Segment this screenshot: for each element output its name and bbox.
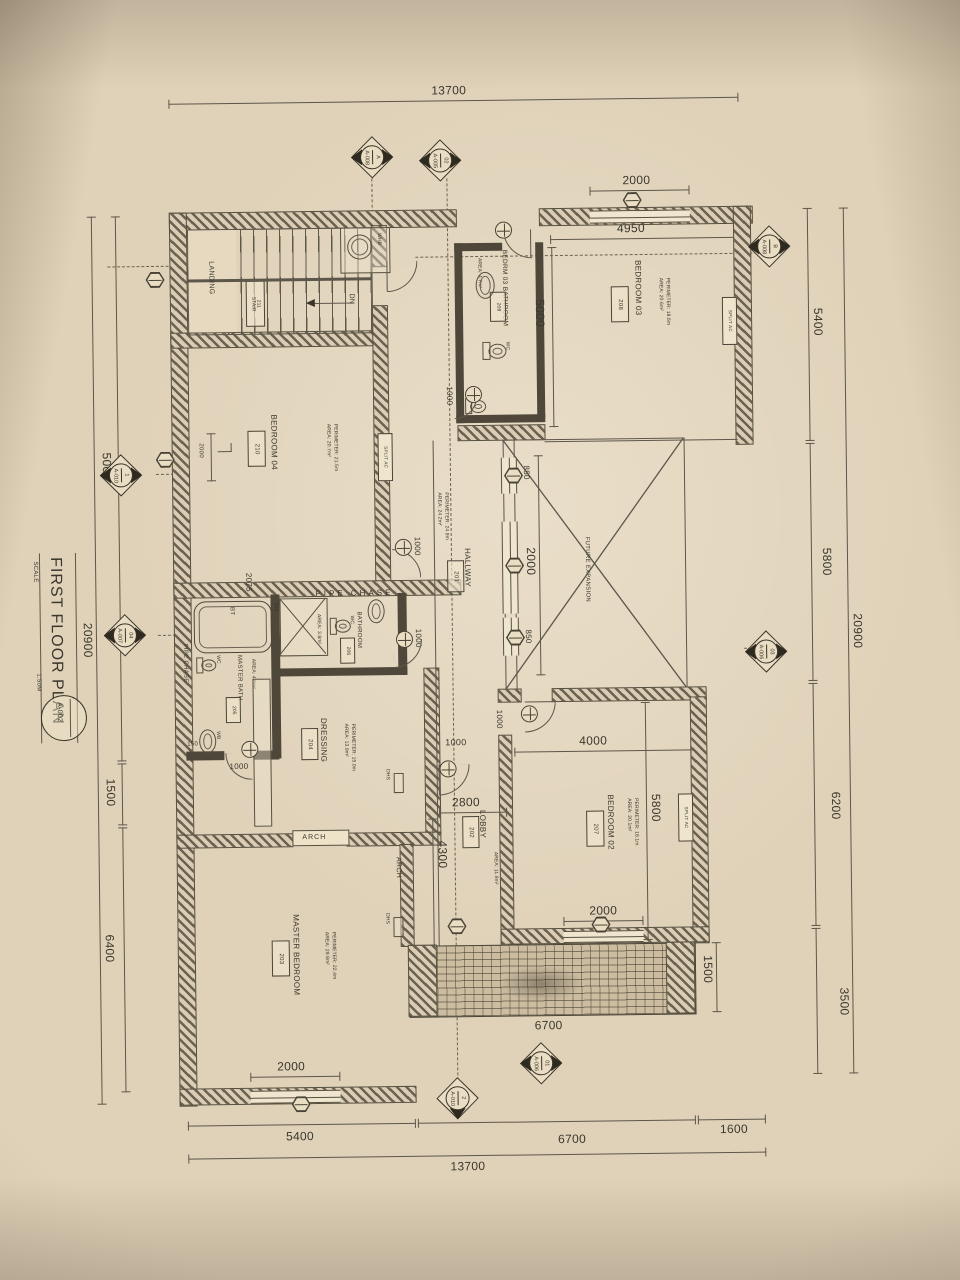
split-ac-bedroom03: SPLIT AC — [722, 297, 738, 345]
dim-wc-door: 1000 — [445, 386, 453, 405]
dim-line-lobby-width — [439, 812, 507, 814]
scale-value: 1:50M — [35, 673, 41, 691]
master-bedroom-label: MASTER BEDROOM — [291, 914, 300, 995]
bedroom03-label: BEDROOM 03 — [633, 260, 642, 316]
marker-number: 1 — [123, 474, 129, 477]
window-bedroom03-top — [590, 209, 690, 223]
bedroom02-perimeter: PERIMETER: 18.1m — [633, 798, 639, 846]
dim-line-bed02-width — [514, 749, 691, 752]
marker-number: 01 — [544, 1060, 550, 1066]
marker-sheet: A-005 — [432, 153, 438, 168]
dim-right-3: 6200 — [830, 792, 842, 820]
dim-line-bed03-width — [550, 237, 740, 240]
masterbath-basin-label: WB — [215, 731, 220, 739]
dim-bed04-2000: 2000 — [198, 443, 204, 458]
photo-of-floor-plan-sheet: SCALE FIRST FLOOR PLAN 1:50M A-002 13700… — [0, 0, 960, 1280]
dim-hall-door-1: 1000 — [413, 537, 421, 556]
floor-plan-drawing: SCALE FIRST FLOOR PLAN 1:50M A-002 13700… — [0, 0, 960, 1280]
bathroom206-area: AREA: 3.8m² — [316, 614, 321, 644]
marker-sheet: A-007 — [116, 628, 122, 643]
dim-lobby-height: 4300 — [436, 840, 448, 868]
dressing-area-text: AREA: 13.9m² PERIMETER: 15.0m — [343, 724, 356, 772]
marker-number: 02 — [443, 157, 449, 163]
bed04-furniture-mark-a — [218, 451, 232, 452]
dim-bottom-1: 5400 — [286, 1130, 314, 1142]
arch-label-v: ARCH — [395, 857, 402, 878]
hallway-perimeter: PERIMETER: 24.9m — [443, 492, 449, 540]
bedroom02-tag-number: 207 — [592, 823, 598, 834]
masterbath-basin — [199, 729, 216, 753]
marker-sheet: A-008 — [364, 150, 370, 165]
bed04-furniture-mark-b — [231, 443, 232, 452]
dim-lobby-width: 2800 — [452, 796, 480, 808]
scale-label: SCALE — [32, 561, 38, 582]
section-marker-02: A-00502 — [422, 142, 458, 178]
dim-bed02-door: 1000 — [495, 710, 503, 729]
marker-number: A — [375, 155, 381, 159]
wall-bath209-right — [535, 242, 545, 418]
wall-top-left — [170, 210, 456, 229]
dhs-label-master: DHS — [384, 913, 389, 924]
split-ac-bedroom03-label: SPLIT AC — [727, 310, 732, 332]
dim-line-left-2 — [121, 763, 123, 825]
dim-line-balcony-width — [716, 942, 718, 1012]
dim-left-total: 20900 — [82, 623, 94, 658]
marker-sheet: A-008 — [761, 239, 767, 254]
door-tag-lobby — [439, 760, 456, 777]
bath206-wc-label: WC — [349, 616, 354, 625]
bedroom04-label: BEDROOM 04 — [269, 414, 278, 470]
dhs-label-dressing: DHS — [385, 769, 390, 780]
dim-line-top-window — [590, 189, 690, 191]
pipe-chase-label-v: PIPE CHASE — [182, 644, 188, 683]
window-tag-left-wall-1 — [145, 272, 164, 288]
dim-left-2: 1500 — [105, 778, 117, 806]
pipe-chase-label-h: PIPE CHASE — [315, 589, 393, 598]
lobby-tag: 202 — [462, 816, 479, 848]
section-marker-01: A-00601 — [523, 1045, 559, 1081]
section-marker-1: A-0101 — [103, 457, 139, 493]
balcony-cap-right — [667, 942, 695, 1012]
dim-bed02-window: 2000 — [589, 904, 617, 916]
dim-bath209-height: 5000 — [534, 299, 546, 327]
dim-top-window: 2000 — [622, 174, 650, 186]
wall-dressing-bottom-right — [347, 832, 440, 845]
dressing-perimeter: PERIMETER: 15.0m — [350, 724, 356, 772]
stair-number: 211 — [255, 300, 260, 308]
dim-top-total: 13700 — [431, 84, 466, 96]
bathroom206-area-text: AREA: 3.8m² — [316, 614, 321, 644]
sheet-number-bubble: A-002 — [41, 695, 88, 742]
marker-sheet: A-010 — [449, 1091, 455, 1106]
marker-sheet: A-006 — [758, 644, 764, 659]
marker-sheet: A-010 — [112, 468, 118, 483]
dim-bottom-2: 6700 — [558, 1133, 586, 1145]
dim-line-right-1 — [807, 208, 811, 441]
wall-bed02-top-a — [499, 690, 521, 702]
masterbath-tag-number: 205 — [231, 706, 236, 715]
dhs-unit-dressing — [394, 773, 404, 793]
masterbath-wc-bowl — [201, 659, 216, 671]
door-tag-hall-2 — [396, 631, 413, 648]
dim-bottom-3: 1600 — [720, 1123, 748, 1135]
marker-number: B — [772, 244, 778, 248]
dim-bed02-height: 5800 — [650, 794, 662, 822]
stair-tag: STAIR 211 — [246, 281, 266, 327]
sheet-number: A-002 — [56, 702, 63, 722]
bedroom04-area: AREA: 20.7m² — [325, 424, 331, 472]
dim-line-bed02-height — [645, 702, 649, 940]
dim-line-left-3 — [122, 827, 126, 1092]
dim-150: 150 — [187, 741, 198, 747]
hallway-tag-number: 201 — [453, 571, 459, 582]
future-expansion-label: FUTURE EXPANSION — [584, 537, 591, 602]
dim-hall-win-3: 850 — [524, 629, 532, 643]
split-ac-bedroom02: SPLIT AC — [678, 793, 694, 841]
hallway-area: AREA: 24.2m² — [436, 492, 442, 540]
door-tag-bedroom02 — [521, 705, 538, 722]
wall-bed02-right — [691, 697, 709, 942]
door-arc-bedroom04 — [386, 261, 417, 292]
landing-label: LANDING — [207, 261, 214, 294]
bed03-bath-tag: 209 — [490, 292, 506, 322]
section-marker-a: A-008A — [354, 139, 390, 175]
bedroom02-label: BEDROOM 02 — [606, 794, 615, 850]
bedroom03-area-text: AREA: 20.6m² PERIMETER: 18.6m — [658, 278, 671, 326]
dressing-area: AREA: 13.9m² — [343, 724, 349, 772]
bedroom03-area: AREA: 20.6m² — [658, 278, 664, 326]
sheet-number-divider — [70, 699, 71, 737]
dim-line-bottom-1 — [188, 1123, 416, 1127]
dim-line-bed04-2000 — [210, 433, 212, 481]
bathroom206-tag-number: 206 — [345, 646, 350, 655]
dim-hall-win-1: 850 — [522, 465, 530, 479]
arch-label-h: ARCH — [302, 834, 326, 841]
dash-line-top-left — [107, 266, 173, 268]
dim-balcony-length: 6700 — [535, 1019, 563, 1031]
dim-line-top-total — [168, 97, 738, 105]
dim-left-3: 6400 — [104, 934, 116, 962]
bedroom03-perimeter: PERIMETER: 18.6m — [665, 278, 671, 326]
dressing-tag-number: 204 — [307, 739, 313, 750]
hallway-area-text: AREA: 24.2m² PERIMETER: 24.9m — [436, 492, 449, 540]
dn-label: DN — [348, 294, 355, 305]
section-marker-2: A-0102 — [439, 1080, 475, 1116]
bedroom04-tag-number: 210 — [254, 443, 260, 454]
dressing-label: DRESSING — [319, 718, 328, 762]
dim-line-bottom-3 — [698, 1119, 766, 1121]
dim-line-right-2 — [810, 443, 814, 681]
wall-bath209-bottom — [458, 425, 544, 440]
master-bedroom-area-text: AREA: 29.8m² PERIMETER: 22.4m — [324, 932, 337, 980]
section-marker-03: A-00603 — [748, 633, 784, 669]
section-marker-04: A-00704 — [107, 617, 143, 653]
dash-line-marker-1 — [156, 474, 174, 475]
wall-bath209-bottom-solid — [456, 414, 545, 423]
balcony-cap-left — [409, 946, 437, 1016]
bed03-bath-wc-label: WC — [504, 342, 509, 351]
dn-arrow-head — [306, 299, 315, 307]
hallway-tag: 201 — [447, 560, 464, 592]
lobby-area-text: AREA: 11.9m² — [493, 852, 498, 885]
bathroom206-label: BATHROOM — [356, 611, 362, 648]
balcony — [409, 942, 697, 1018]
bedroom03-tag: 208 — [611, 286, 629, 322]
bedroom03-tag-number: 208 — [617, 299, 623, 310]
bedroom04-area-text: AREA: 20.7m² PERIMETER: 21.5m — [325, 424, 338, 472]
bed03-bath-basin — [476, 272, 495, 299]
bathtub-label: BT — [229, 607, 235, 615]
dim-line-right-4 — [816, 928, 819, 1074]
marker-sheet: A-006 — [533, 1056, 539, 1071]
wall-dressing-bottom-left — [177, 834, 292, 847]
masterbath-wc-label: WC — [215, 655, 220, 664]
wall-bed02-top-b — [553, 687, 706, 701]
split-ac-bedroom02-label: SPLIT AC — [683, 806, 688, 828]
dim-line-left-total — [91, 217, 103, 1105]
dim-pipe-chase: 2075 — [244, 573, 252, 592]
shower-label: SH — [273, 602, 279, 611]
window-tag-bed03-top — [623, 192, 642, 208]
dim-line-bottom-2 — [418, 1119, 696, 1123]
wall-lobby-bed02 — [499, 736, 514, 945]
door-tag-small-wc — [465, 386, 482, 403]
wall-bath206-bottom — [278, 667, 407, 677]
master-bedroom-tag-number: 203 — [278, 953, 284, 964]
bath206-basin — [367, 599, 384, 623]
dim-right-4: 3500 — [838, 988, 850, 1016]
section-line-horizontal — [415, 253, 757, 258]
door-tag-masterbath — [241, 741, 258, 758]
dim-line-right-3 — [813, 683, 817, 926]
dressing-tag: 204 — [301, 728, 318, 760]
masterbath-label: MASTER BATH — [236, 655, 243, 701]
lobby-area: AREA: 11.9m² — [493, 852, 498, 885]
dim-bed02-width: 4000 — [579, 734, 607, 746]
bathroom206-tag: 206 — [340, 638, 355, 664]
dim-line-master-window — [250, 1076, 340, 1078]
section-marker-b: A-008B — [751, 228, 787, 264]
marker-number: 03 — [769, 648, 775, 654]
dim-hall-win-2: 2000 — [525, 547, 537, 575]
bed03-bath-tag-number: 209 — [495, 302, 500, 311]
split-ac-bedroom04-label: SPLIT AC — [383, 446, 388, 468]
bedroom02-tag: 207 — [586, 810, 604, 846]
lobby-tag-number: 202 — [468, 827, 474, 838]
master-bedroom-tag: 203 — [272, 940, 290, 976]
door-tag-bath209 — [495, 222, 512, 239]
marker-number: 2 — [460, 1097, 466, 1100]
dim-master-window: 2000 — [277, 1060, 305, 1072]
dim-right-1: 5400 — [812, 308, 824, 336]
window-tag-balcony-left — [447, 918, 466, 934]
dim-balcony-width: 1500 — [702, 955, 714, 983]
dim-right-total: 20900 — [852, 613, 864, 648]
bedroom04-perimeter: PERIMETER: 21.5m — [332, 424, 338, 472]
marker-number: 04 — [127, 632, 133, 638]
masterbath-tag: 205 — [226, 697, 241, 723]
dim-bottom-total: 13700 — [450, 1160, 485, 1172]
dim-lobby-door: 1000 — [445, 738, 466, 747]
bedroom02-area-text: AREA: 20.1m² PERIMETER: 18.1m — [626, 798, 639, 846]
bedroom02-area: AREA: 20.1m² — [626, 798, 632, 846]
door-tag-hall-1 — [395, 539, 412, 556]
master-bedroom-area: AREA: 29.8m² — [324, 932, 330, 980]
dash-line-marker-04 — [158, 635, 176, 636]
whb-basin — [347, 234, 372, 259]
bedroom04-tag: 210 — [247, 431, 265, 467]
dim-right-2: 5800 — [821, 548, 833, 576]
master-bedroom-perimeter: PERIMETER: 22.4m — [331, 932, 337, 980]
split-ac-bedroom04: SPLIT AC — [377, 433, 393, 481]
wall-bath209-top — [454, 243, 502, 252]
dhs-unit-master — [393, 917, 403, 937]
dim-line-bath209-height — [551, 247, 554, 427]
whb-label: WHB — [376, 233, 381, 245]
